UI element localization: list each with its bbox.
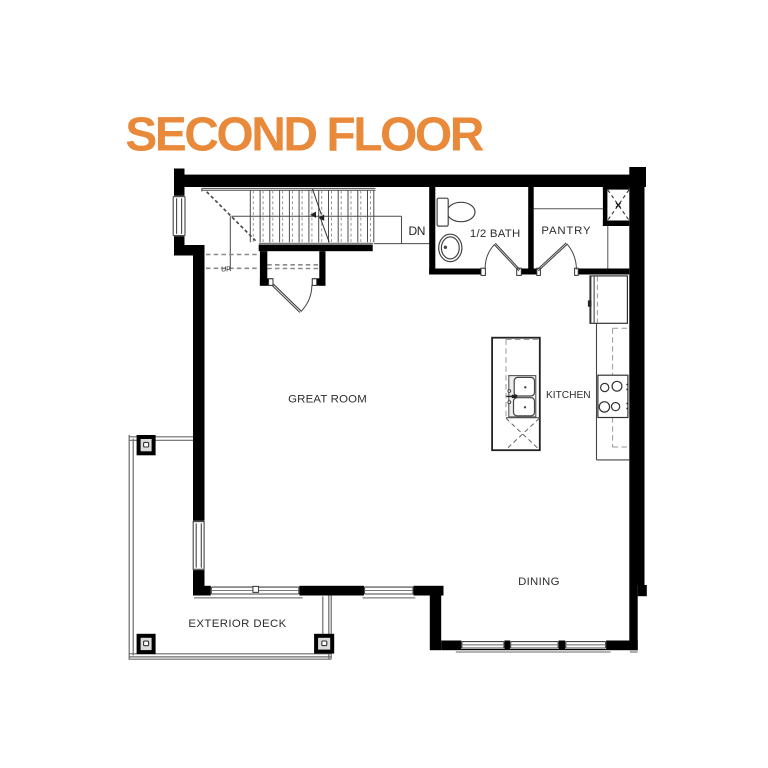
svg-text:SECOND FLOOR: SECOND FLOOR [125, 108, 484, 161]
svg-text:UP: UP [221, 266, 231, 273]
svg-text:GREAT ROOM: GREAT ROOM [288, 394, 367, 406]
svg-text:KITCHEN: KITCHEN [546, 390, 591, 401]
svg-text:DN: DN [409, 224, 426, 238]
svg-text:1/2 BATH: 1/2 BATH [470, 228, 521, 240]
svg-text:EXTERIOR DECK: EXTERIOR DECK [188, 618, 286, 630]
svg-text:PANTRY: PANTRY [541, 225, 591, 237]
svg-text:DINING: DINING [518, 576, 560, 588]
